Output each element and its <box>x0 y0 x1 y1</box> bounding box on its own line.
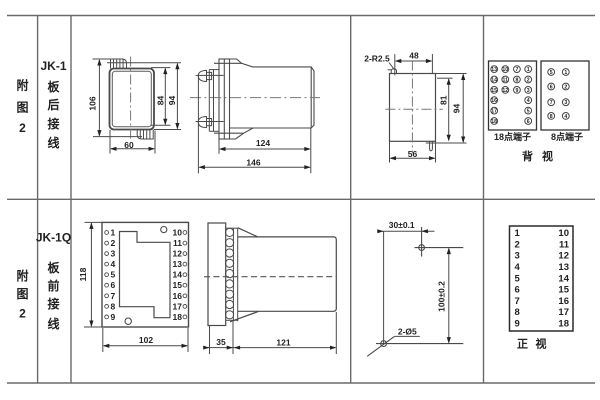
svg-text:附: 附 <box>16 268 28 283</box>
svg-text:102: 102 <box>139 335 153 345</box>
svg-text:2: 2 <box>111 238 116 248</box>
svg-text:1: 1 <box>527 67 530 73</box>
svg-text:4: 4 <box>515 262 521 273</box>
svg-text:2-R2.5: 2-R2.5 <box>364 54 390 64</box>
svg-text:16: 16 <box>558 296 569 307</box>
svg-text:81: 81 <box>438 95 448 105</box>
svg-text:1: 1 <box>111 228 116 238</box>
svg-text:30±0.1: 30±0.1 <box>389 220 415 230</box>
svg-text:12: 12 <box>558 251 569 262</box>
svg-text:60: 60 <box>124 140 134 150</box>
svg-text:146: 146 <box>246 157 260 167</box>
svg-text:11: 11 <box>503 77 509 83</box>
svg-text:线: 线 <box>47 135 59 150</box>
svg-text:15: 15 <box>173 280 183 290</box>
svg-text:后: 后 <box>47 97 59 112</box>
svg-text:接: 接 <box>47 116 59 131</box>
svg-text:6: 6 <box>111 280 116 290</box>
svg-text:9: 9 <box>111 312 116 322</box>
svg-text:3: 3 <box>527 88 530 94</box>
svg-text:11: 11 <box>173 238 182 248</box>
svg-text:2: 2 <box>19 121 26 135</box>
svg-text:图: 图 <box>16 287 28 301</box>
svg-text:48: 48 <box>409 51 419 61</box>
svg-text:7: 7 <box>550 100 553 106</box>
svg-text:12: 12 <box>173 249 183 259</box>
svg-text:14: 14 <box>173 270 183 280</box>
svg-text:8: 8 <box>515 307 520 318</box>
svg-text:5: 5 <box>527 109 530 115</box>
svg-text:13: 13 <box>491 67 497 73</box>
svg-text:10: 10 <box>502 67 508 73</box>
svg-text:94: 94 <box>167 96 177 106</box>
svg-text:35: 35 <box>216 337 226 347</box>
svg-text:3: 3 <box>111 249 116 259</box>
svg-text:2: 2 <box>515 239 520 250</box>
svg-text:121: 121 <box>276 337 290 347</box>
svg-text:16: 16 <box>173 291 183 301</box>
svg-text:3: 3 <box>515 251 520 262</box>
svg-text:2: 2 <box>19 307 26 321</box>
svg-text:18: 18 <box>558 319 569 330</box>
svg-text:3: 3 <box>564 100 567 106</box>
svg-text:板: 板 <box>47 260 60 275</box>
svg-text:接: 接 <box>47 296 59 311</box>
svg-text:2: 2 <box>527 77 530 83</box>
svg-text:JK-1Q: JK-1Q <box>36 231 71 245</box>
svg-text:1: 1 <box>515 228 521 239</box>
svg-text:16: 16 <box>491 98 497 104</box>
svg-text:8: 8 <box>550 114 553 120</box>
svg-text:背: 背 <box>522 149 533 163</box>
svg-text:8: 8 <box>515 77 518 83</box>
svg-text:前: 前 <box>47 278 59 293</box>
svg-text:15: 15 <box>558 285 569 296</box>
svg-text:2-Ø5: 2-Ø5 <box>398 327 417 337</box>
svg-text:106: 106 <box>88 96 98 110</box>
svg-text:9: 9 <box>515 88 518 94</box>
svg-text:7: 7 <box>111 291 116 301</box>
svg-text:线: 线 <box>47 316 59 331</box>
svg-text:14: 14 <box>491 77 497 83</box>
svg-text:4: 4 <box>564 114 567 120</box>
svg-text:1: 1 <box>564 70 567 76</box>
svg-text:17: 17 <box>558 307 569 318</box>
svg-text:84: 84 <box>155 96 165 106</box>
svg-text:118: 118 <box>78 267 88 281</box>
svg-text:7: 7 <box>515 67 518 73</box>
svg-text:13: 13 <box>173 259 183 269</box>
svg-text:100±0.2: 100±0.2 <box>436 281 446 312</box>
svg-text:JK-1: JK-1 <box>40 59 66 73</box>
svg-text:5: 5 <box>111 270 116 280</box>
svg-text:56: 56 <box>408 149 418 159</box>
svg-text:4: 4 <box>111 259 116 269</box>
svg-text:板: 板 <box>47 79 60 94</box>
svg-text:14: 14 <box>558 273 569 284</box>
svg-text:6: 6 <box>515 285 520 296</box>
svg-text:正: 正 <box>517 338 528 351</box>
svg-text:94: 94 <box>452 104 462 114</box>
svg-text:17: 17 <box>491 109 497 115</box>
svg-text:124: 124 <box>256 138 270 148</box>
svg-text:12: 12 <box>502 88 508 94</box>
svg-text:18: 18 <box>491 119 497 125</box>
svg-text:6: 6 <box>527 119 530 125</box>
svg-text:2: 2 <box>564 84 567 90</box>
svg-text:10: 10 <box>558 228 569 239</box>
svg-text:10: 10 <box>173 228 183 238</box>
svg-text:附: 附 <box>16 78 28 93</box>
svg-text:9: 9 <box>515 319 520 330</box>
svg-text:5: 5 <box>515 273 521 284</box>
svg-text:5: 5 <box>550 70 553 76</box>
svg-text:17: 17 <box>173 301 183 311</box>
svg-text:6: 6 <box>550 84 553 90</box>
svg-text:视: 视 <box>536 337 547 351</box>
svg-text:15: 15 <box>491 88 497 94</box>
svg-text:18: 18 <box>173 312 183 322</box>
svg-text:13: 13 <box>558 262 569 273</box>
svg-text:视: 视 <box>542 149 553 163</box>
svg-text:7: 7 <box>515 296 520 307</box>
svg-text:8点端子: 8点端子 <box>551 131 583 142</box>
svg-text:8: 8 <box>111 301 116 311</box>
svg-text:11: 11 <box>559 239 570 250</box>
svg-text:图: 图 <box>16 101 28 115</box>
svg-text:18点端子: 18点端子 <box>494 131 531 142</box>
svg-text:4: 4 <box>527 98 530 104</box>
